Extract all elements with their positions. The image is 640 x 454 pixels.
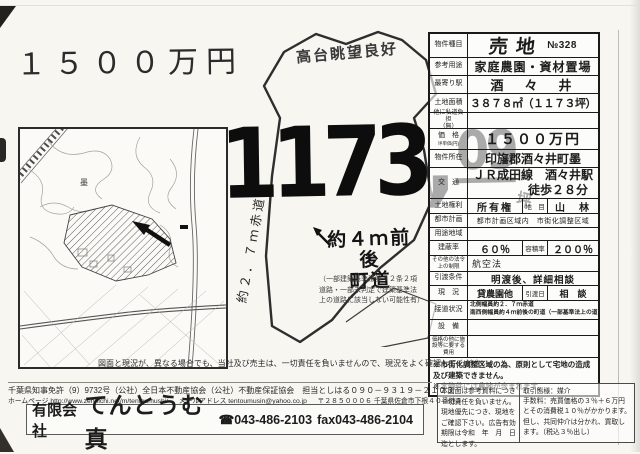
subject-parcel-hatched	[64, 205, 176, 281]
value-land-area: ３８７８㎡（１１７３坪）	[468, 94, 598, 112]
field-grid	[22, 285, 224, 367]
value-other-law: 航空法	[468, 256, 598, 271]
value-reference-use: 家庭農園・資材置場	[468, 58, 598, 75]
price-headline: １５００万円	[16, 36, 245, 83]
scan-blot-top-left	[0, 6, 16, 28]
row-zoning: 用途地域	[430, 228, 598, 241]
map-marker	[180, 225, 188, 229]
row-road-frontage: 接道状況 北側幅員約２．７ｍ赤道 南西側幅員約４ｍ前後の町道（一部基準法上の道	[430, 301, 598, 320]
scan-blot-bottom-left	[0, 428, 14, 452]
label-nearest-station: 最寄り駅	[430, 76, 468, 93]
row-price: 価 格 坪単価(円) １５００万円	[430, 129, 598, 150]
label-handover: 引渡条件	[430, 272, 468, 285]
license-line: 千葉県知事免許（9）9732号（公社）全日本不動産協会（公社）不動産保証協会 担…	[8, 382, 432, 396]
commission-note: 手数料：売買価格の３％＋６万円とその消費税１０％がかかります。但し、共同仲介は分…	[523, 398, 631, 436]
town-road-legal-note: （一部建築基準法第４２条２項道路・一部未判定で建築基準法上の道路に該当しない可能…	[319, 275, 422, 307]
company-prefix: 有限会社	[32, 399, 85, 441]
frontage-line1: 北側幅員約２．７ｍ赤道	[470, 302, 534, 310]
company-banner: 有限会社 てんとうむ真 ☎043-486-2103 fax043-486-210…	[26, 404, 424, 435]
label-access: 交 通	[430, 168, 468, 198]
row-other-law: その他の法令上の制限 航空法	[430, 256, 598, 272]
location-map: 墨	[18, 127, 228, 369]
value-property-type: 売地	[488, 34, 545, 57]
railway-line	[20, 129, 64, 179]
scan-blot-left	[0, 138, 6, 162]
road-right	[188, 129, 198, 367]
row-reference-use: 参考用途 家庭農園・資材置場	[430, 58, 598, 76]
row-equipment: 設 備	[430, 320, 598, 336]
label-other-law: その他の法令上の制限	[430, 256, 468, 271]
label-coverage-ratio: 建蔽率	[430, 241, 468, 255]
row-location: 物件所在 印旛郡酒々井町墨	[430, 150, 598, 168]
label-road-frontage: 接道状況	[430, 301, 468, 319]
listing-number: №328	[547, 40, 577, 51]
company-name: てんとうむ真	[85, 386, 211, 454]
scan-top-line	[0, 5, 640, 6]
label-private-road: 他に私道負担 （無）	[430, 113, 468, 128]
value-coverage-ratio: ６０％	[468, 241, 522, 255]
row-access: 交 通 ＪＲ成田線 酒々井駅 徒歩２８分	[430, 168, 598, 199]
town-road-line1: 約４ｍ前後	[317, 228, 422, 273]
row-private-road: 他に私道負担 （無）	[430, 113, 598, 129]
label-city-planning: 都市計画	[430, 214, 468, 227]
row-handover: 引渡条件 明渡後、詳細相談	[430, 272, 598, 286]
label-extra-cost: 価格の他に施設等に要する費用	[430, 336, 468, 357]
value-land-rights: 所有権	[468, 199, 522, 213]
value-nearest-station: 酒 々 井	[468, 76, 598, 93]
value-extra-cost	[468, 336, 598, 357]
row-land-rights: 土地権利 所有権 地 目 山 林	[430, 199, 598, 214]
value-price: １５００万円	[468, 129, 598, 149]
label-reference-use: 参考用途	[430, 58, 468, 75]
access-line2: 徒歩２８分	[528, 183, 596, 198]
value-current-status: 貸農園他	[468, 286, 522, 300]
property-spec-table: 物件種目 売地 №328 参考用途 家庭農園・資材置場 最寄り駅 酒 々 井 土…	[428, 32, 600, 397]
label-equipment: 設 備	[430, 320, 468, 335]
map-place-label: 墨	[80, 178, 88, 187]
label-price: 価 格 坪単価(円)	[430, 129, 468, 149]
fax-number: fax043-486-2104	[317, 413, 413, 427]
value-floor-ratio: ２００％	[548, 241, 598, 255]
value-handover: 明渡後、詳細相談	[468, 272, 598, 285]
transaction-type: 取引態様：媒介	[523, 387, 631, 397]
label-zoning: 用途地域	[430, 228, 468, 240]
label-land-category: 地 目	[522, 199, 548, 213]
footer-disclaimer: 図面と現況が、異なる場合でも、当社及び売主は、一切責任を負いませんので、現況をよ…	[98, 359, 628, 370]
row-city-planning: 都市計画 都市計画区域内 市街化調整区域	[430, 214, 598, 228]
row-current-status: 現 況 貸農園他 引渡日 相 談	[430, 286, 598, 301]
value-location: 印旛郡酒々井町墨	[468, 150, 598, 167]
terms-box: 本図面は参考資料につき一切責任を負いません。現地優先につき、現地をご確認下さい。…	[437, 383, 635, 443]
access-line1: ＪＲ成田線 酒々井駅	[473, 168, 593, 183]
label-property-type: 物件種目	[430, 34, 468, 57]
frontage-line2: 南西側幅員約４ｍ前後の町道（一部基準法上の道	[470, 310, 598, 318]
value-private-road	[468, 113, 598, 128]
terms-transaction-note: 取引態様：媒介 手数料：売買価格の３％＋６万円とその消費税１０％がかかります。但…	[520, 384, 634, 442]
row-extra-cost: 価格の他に施設等に要する費用	[430, 336, 598, 358]
phone-number: ☎043-486-2103	[219, 412, 312, 427]
row-nearest-station: 最寄り駅 酒 々 井	[430, 76, 598, 94]
label-handover-date: 引渡日	[522, 286, 548, 300]
row-coverage-ratio: 建蔽率 ６０％ 容積率 ２００％	[430, 241, 598, 256]
value-zoning	[468, 228, 598, 240]
value-equipment	[468, 320, 598, 335]
label-current-status: 現 況	[430, 286, 468, 300]
value-handover-date: 相 談	[548, 286, 598, 300]
value-city-planning: 都市計画区域内 市街化調整区域	[468, 214, 598, 227]
label-floor-ratio: 容積率	[522, 241, 548, 255]
value-land-category: 山 林	[548, 199, 598, 213]
label-location: 物件所在	[430, 150, 468, 167]
row-property-type: 物件種目 売地 №328	[430, 34, 598, 58]
map-drawing: 墨	[20, 129, 226, 367]
label-land-rights: 土地権利	[430, 199, 468, 213]
